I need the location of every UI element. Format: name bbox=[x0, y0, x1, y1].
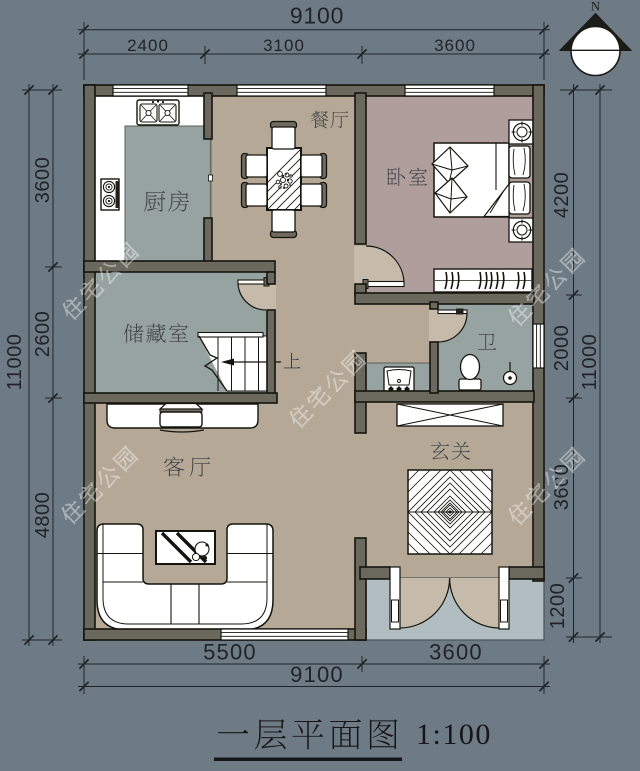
svg-text:1:100: 1:100 bbox=[416, 718, 492, 751]
svg-text:5500: 5500 bbox=[203, 640, 257, 665]
svg-text:11000: 11000 bbox=[4, 334, 26, 391]
svg-text:2000: 2000 bbox=[551, 325, 573, 372]
svg-text:N: N bbox=[591, 0, 600, 14]
svg-text:3600: 3600 bbox=[32, 157, 54, 204]
svg-text:3600: 3600 bbox=[434, 36, 476, 55]
svg-text:1200: 1200 bbox=[547, 583, 569, 630]
svg-text:4200: 4200 bbox=[551, 172, 573, 219]
svg-text:9100: 9100 bbox=[290, 3, 344, 29]
svg-text:9100: 9100 bbox=[290, 662, 344, 687]
svg-text:2400: 2400 bbox=[127, 36, 169, 55]
svg-text:11000: 11000 bbox=[579, 334, 601, 391]
svg-text:2600: 2600 bbox=[32, 311, 54, 358]
svg-text:3600: 3600 bbox=[429, 640, 483, 665]
svg-text:3100: 3100 bbox=[263, 36, 305, 55]
svg-text:4800: 4800 bbox=[32, 492, 54, 539]
